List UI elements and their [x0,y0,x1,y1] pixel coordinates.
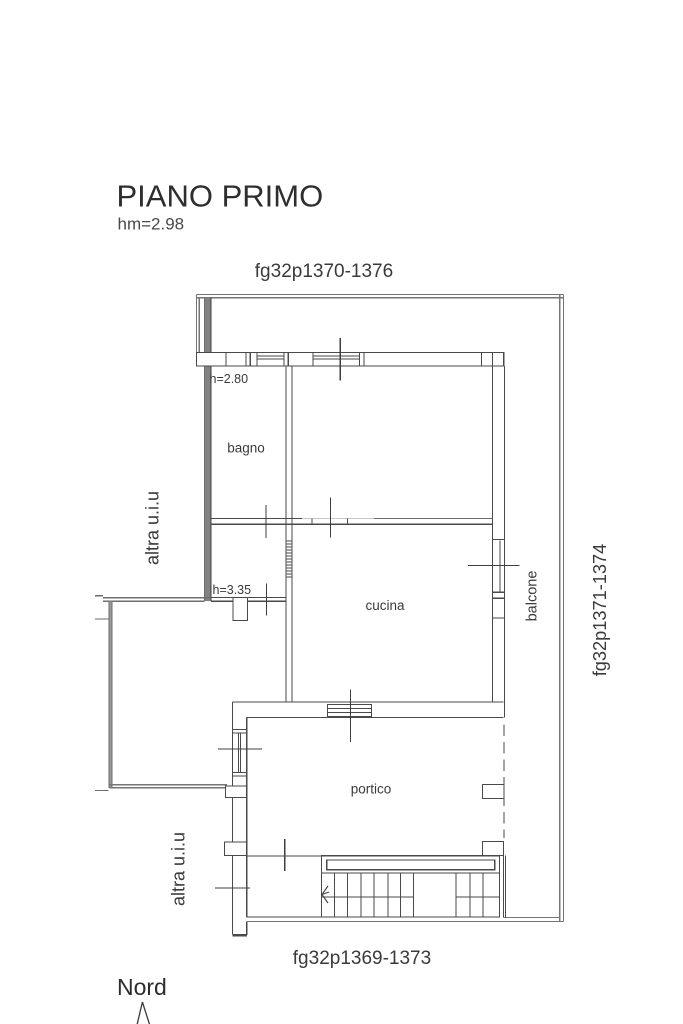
svg-text:fg32p1369-1373: fg32p1369-1373 [293,948,431,969]
svg-text:h=2.80: h=2.80 [210,372,249,386]
svg-text:Nord: Nord [117,974,167,1000]
svg-text:PIANO PRIMO: PIANO PRIMO [117,179,324,214]
svg-text:fg32p1371-1374: fg32p1371-1374 [590,544,610,677]
svg-text:altra u.i.u: altra u.i.u [169,832,189,906]
svg-text:hm=2.98: hm=2.98 [118,215,185,234]
svg-text:balcone: balcone [525,571,541,622]
svg-text:altra u.i.u: altra u.i.u [143,491,163,565]
svg-text:portico: portico [351,782,392,797]
svg-text:cucina: cucina [365,598,405,613]
svg-text:h=3.35: h=3.35 [213,583,252,597]
svg-text:bagno: bagno [227,441,265,456]
svg-text:fg32p1370-1376: fg32p1370-1376 [255,261,393,282]
